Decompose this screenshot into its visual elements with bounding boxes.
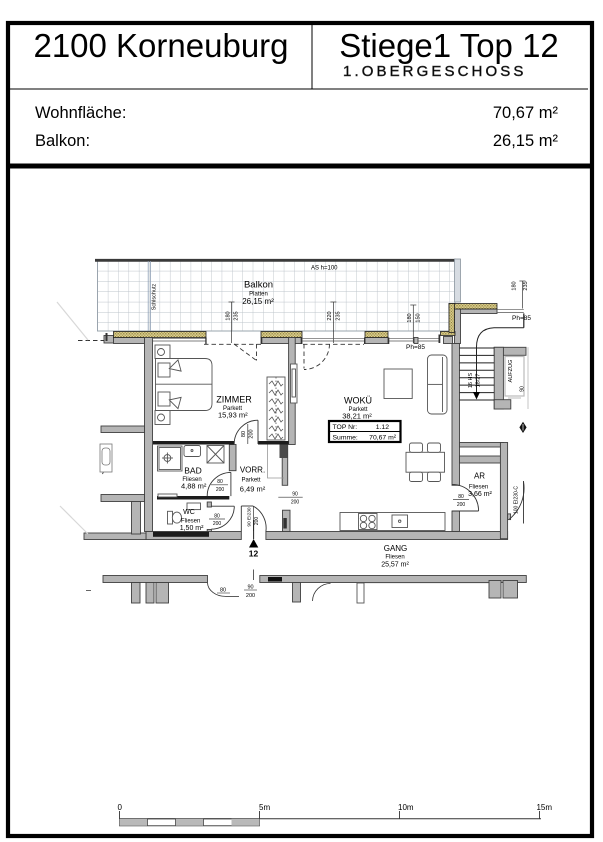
- svg-text:235: 235: [234, 311, 240, 320]
- svg-text:Wohnfläche:: Wohnfläche:: [35, 104, 126, 122]
- svg-text:200: 200: [254, 517, 260, 526]
- svg-text:150: 150: [415, 313, 421, 322]
- svg-text:BAD: BAD: [184, 466, 201, 476]
- svg-text:18/27: 18/27: [476, 374, 482, 388]
- svg-text:Stiege1 Top 12: Stiege1 Top 12: [339, 27, 559, 64]
- svg-text:1.OBERGESCHOSS: 1.OBERGESCHOSS: [343, 63, 526, 80]
- svg-text:Schlschutz: Schlschutz: [152, 283, 158, 310]
- svg-text:26,15 m²: 26,15 m²: [242, 297, 274, 306]
- svg-text:AUFZUG: AUFZUG: [508, 360, 514, 383]
- svg-text:70,67 m²: 70,67 m²: [369, 435, 397, 442]
- svg-text:6,49 m²: 6,49 m²: [240, 485, 266, 494]
- svg-text:Fliesen: Fliesen: [385, 555, 404, 561]
- svg-text:200: 200: [249, 429, 255, 438]
- svg-text:26,15 m²: 26,15 m²: [493, 132, 559, 150]
- svg-text:90: 90: [520, 386, 526, 392]
- svg-text:200: 200: [216, 487, 225, 493]
- svg-text:200: 200: [457, 502, 466, 508]
- svg-text:4,88 m²: 4,88 m²: [181, 482, 207, 491]
- svg-text:AR: AR: [474, 472, 485, 481]
- svg-text:12: 12: [249, 549, 259, 559]
- svg-text:180: 180: [512, 281, 518, 290]
- svg-text:VORR.: VORR.: [240, 466, 265, 475]
- svg-text:80: 80: [241, 431, 247, 437]
- svg-text:25,57 m²: 25,57 m²: [381, 562, 409, 569]
- svg-text:GANG: GANG: [384, 544, 408, 553]
- svg-text:Summe:: Summe:: [333, 435, 358, 442]
- svg-text:AS h=100: AS h=100: [311, 266, 338, 272]
- svg-text:1.12: 1.12: [376, 424, 389, 431]
- svg-text:TOP Nr:: TOP Nr:: [333, 424, 358, 431]
- svg-text:90 EI230: 90 EI230: [247, 507, 253, 527]
- svg-text:235: 235: [523, 281, 529, 290]
- svg-text:Ph=85: Ph=85: [406, 344, 425, 351]
- svg-text:38,21 m²: 38,21 m²: [342, 412, 372, 421]
- svg-text:ZIMMER: ZIMMER: [216, 395, 252, 405]
- svg-text:200: 200: [246, 593, 255, 599]
- svg-text:80: 80: [220, 588, 226, 594]
- svg-text:WC: WC: [183, 509, 195, 516]
- svg-text:16 HS: 16 HS: [468, 373, 474, 389]
- svg-text:15m: 15m: [536, 803, 552, 812]
- svg-text:1,50 m²: 1,50 m²: [180, 525, 204, 532]
- svg-text:80: 80: [214, 514, 220, 520]
- svg-text:180: 180: [225, 311, 231, 320]
- svg-text:15,93 m²: 15,93 m²: [218, 411, 248, 420]
- svg-text:70,67 m²: 70,67 m²: [493, 104, 559, 122]
- svg-text:2100 Korneuburg: 2100 Korneuburg: [33, 27, 288, 64]
- svg-text:200: 200: [291, 500, 300, 506]
- svg-text:90: 90: [292, 492, 298, 498]
- svg-text:Balkon: Balkon: [244, 280, 273, 291]
- svg-text:220: 220: [327, 311, 333, 320]
- svg-text:180: 180: [407, 313, 413, 322]
- svg-text:Fliesen: Fliesen: [469, 485, 488, 491]
- svg-text:235: 235: [336, 311, 342, 320]
- svg-text:Parkett: Parkett: [241, 478, 260, 484]
- svg-text:Balkon:: Balkon:: [35, 132, 90, 150]
- svg-text:5m: 5m: [259, 803, 270, 812]
- svg-text:80: 80: [217, 479, 223, 485]
- svg-text:Ph=85: Ph=85: [512, 315, 531, 322]
- svg-text:80: 80: [458, 494, 464, 500]
- svg-text:200: 200: [213, 521, 222, 527]
- svg-text:Fliesen: Fliesen: [181, 519, 200, 525]
- svg-text:0: 0: [118, 803, 123, 812]
- svg-text:100 EI230-C: 100 EI230-C: [514, 486, 520, 514]
- svg-text:WOKÜ: WOKÜ: [344, 396, 372, 406]
- svg-text:10m: 10m: [398, 803, 414, 812]
- svg-text:3,66 m²: 3,66 m²: [468, 491, 492, 498]
- svg-text:90: 90: [247, 585, 253, 591]
